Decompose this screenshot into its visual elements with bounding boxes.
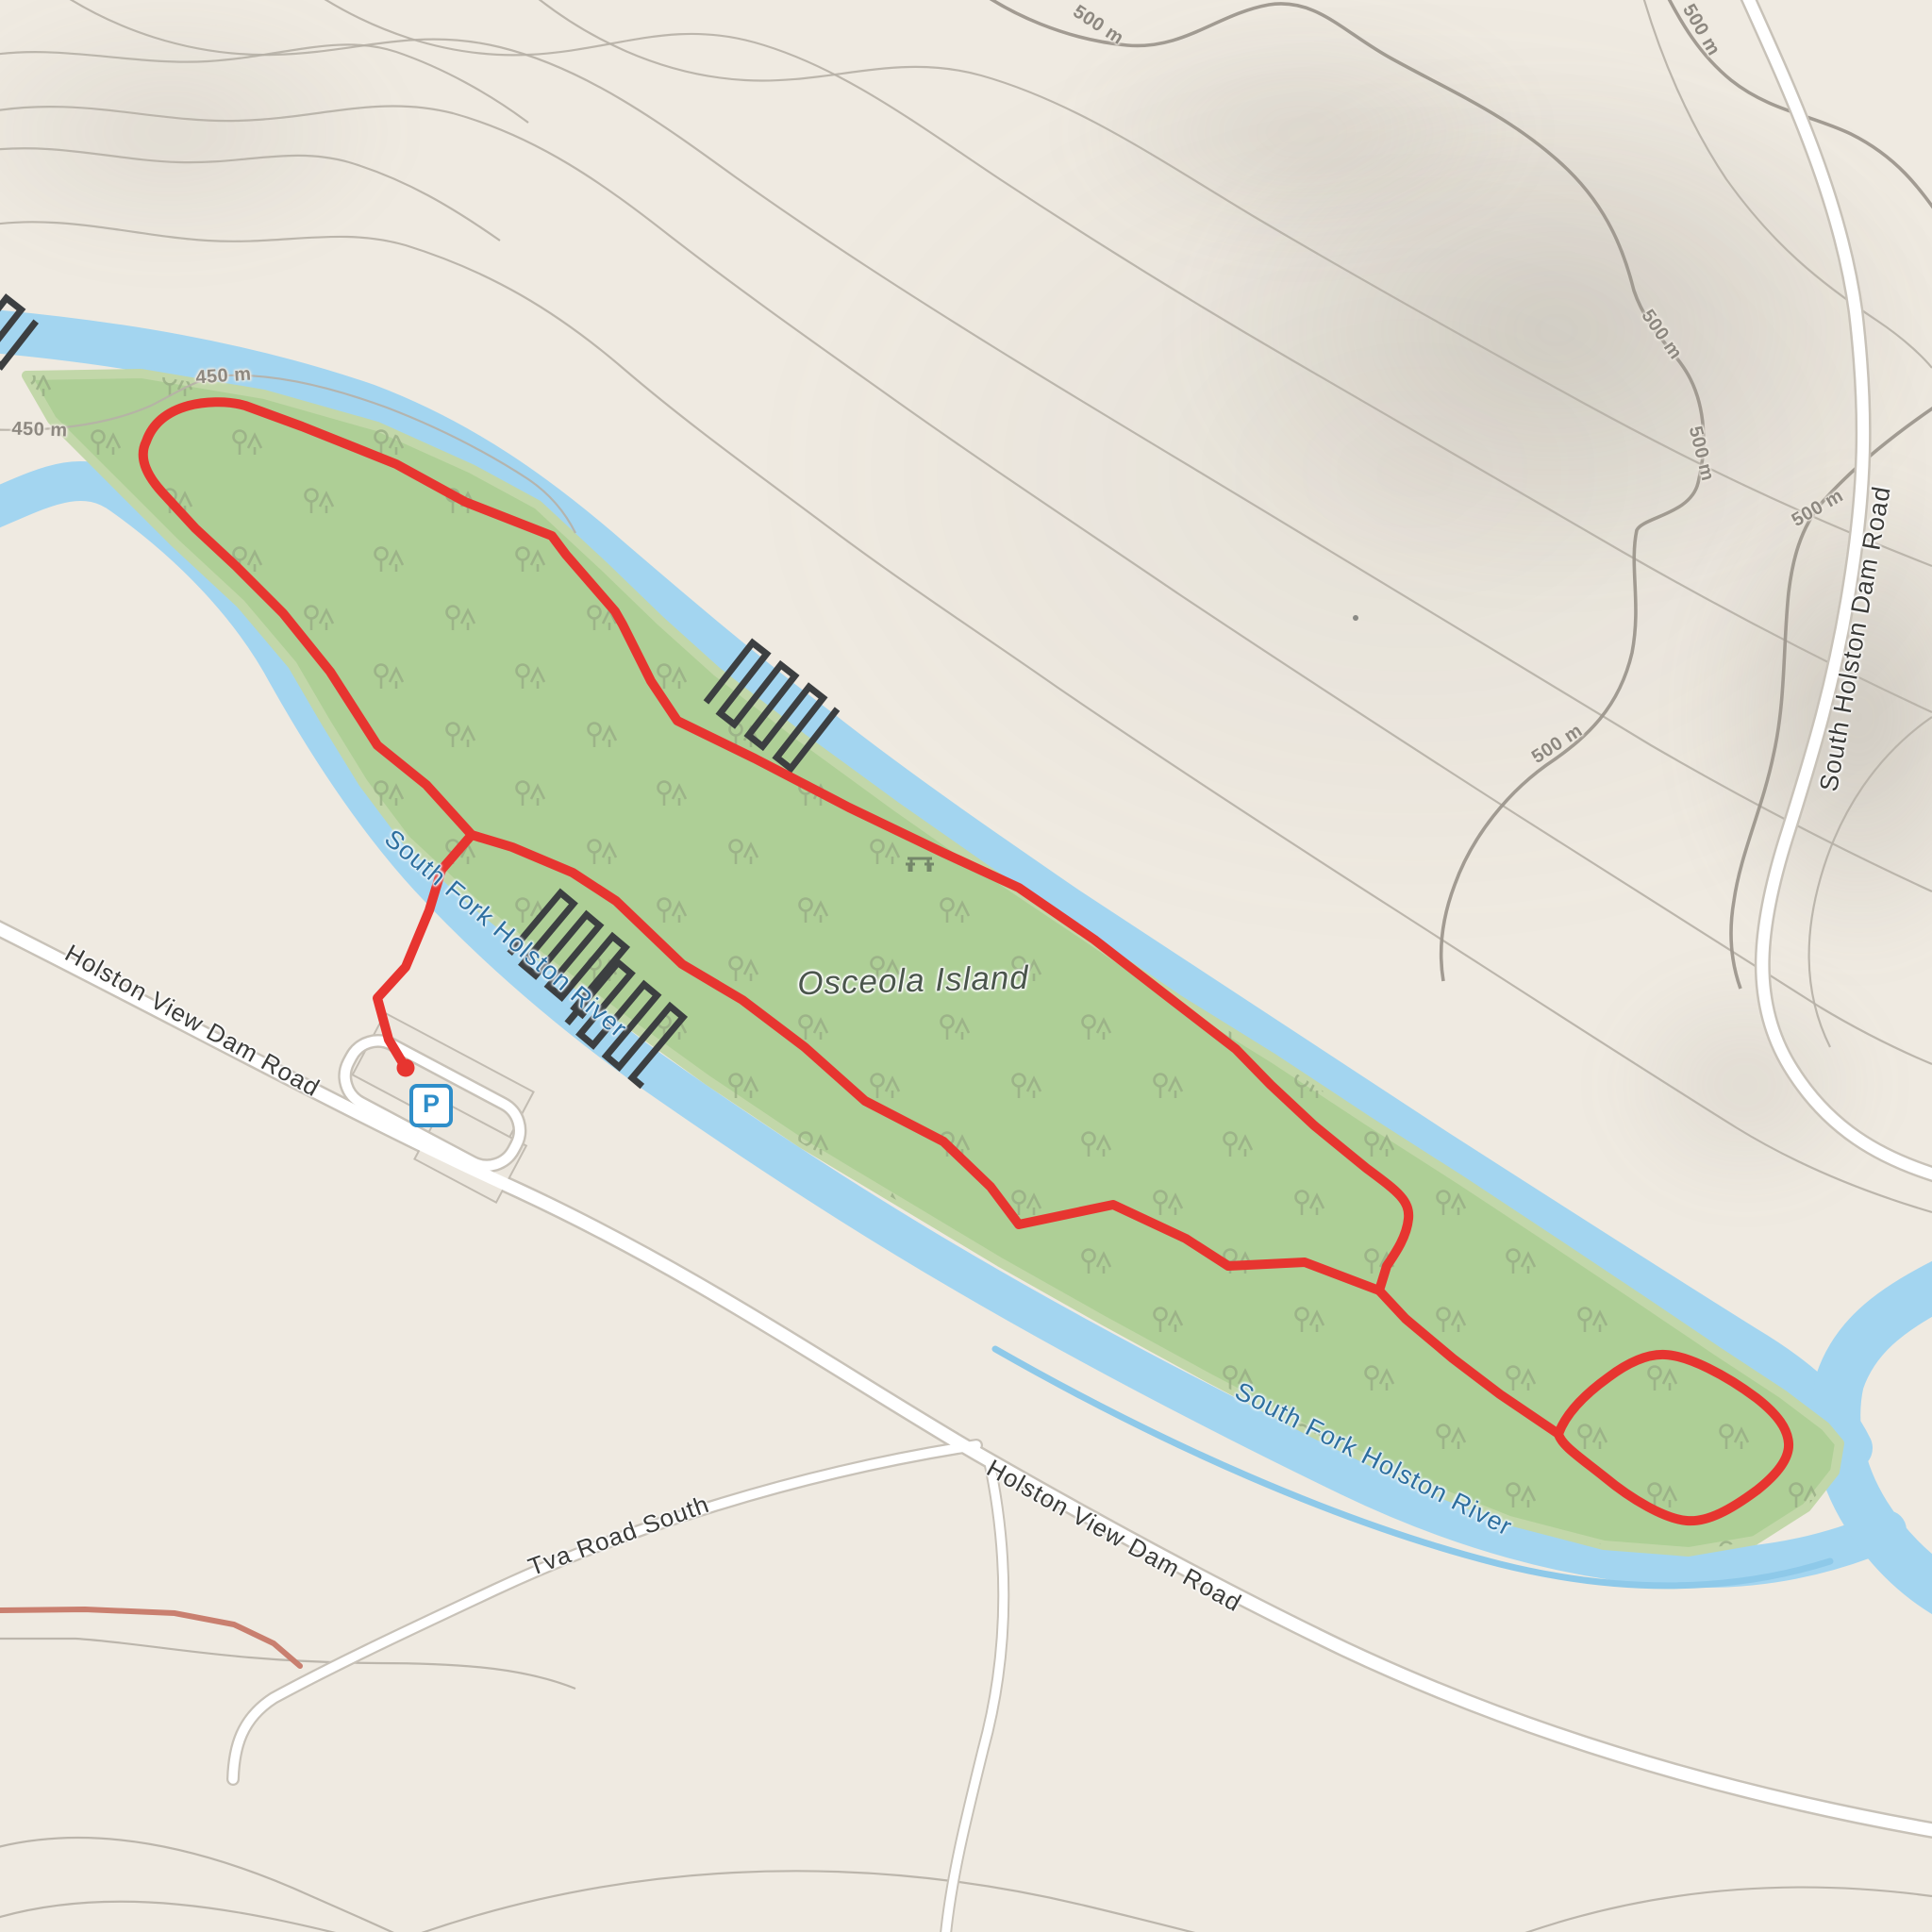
tree-pattern xyxy=(26,374,1840,1552)
road-tva-south xyxy=(233,1445,976,1779)
trailhead-dot xyxy=(397,1059,415,1077)
map-canvas[interactable]: Osceola Island South Fork Holston River … xyxy=(0,0,1932,1932)
poi-dot xyxy=(1353,615,1358,621)
island-forest xyxy=(26,374,1840,1552)
map-layers xyxy=(0,0,1932,1932)
parking-icon: P xyxy=(409,1084,453,1127)
